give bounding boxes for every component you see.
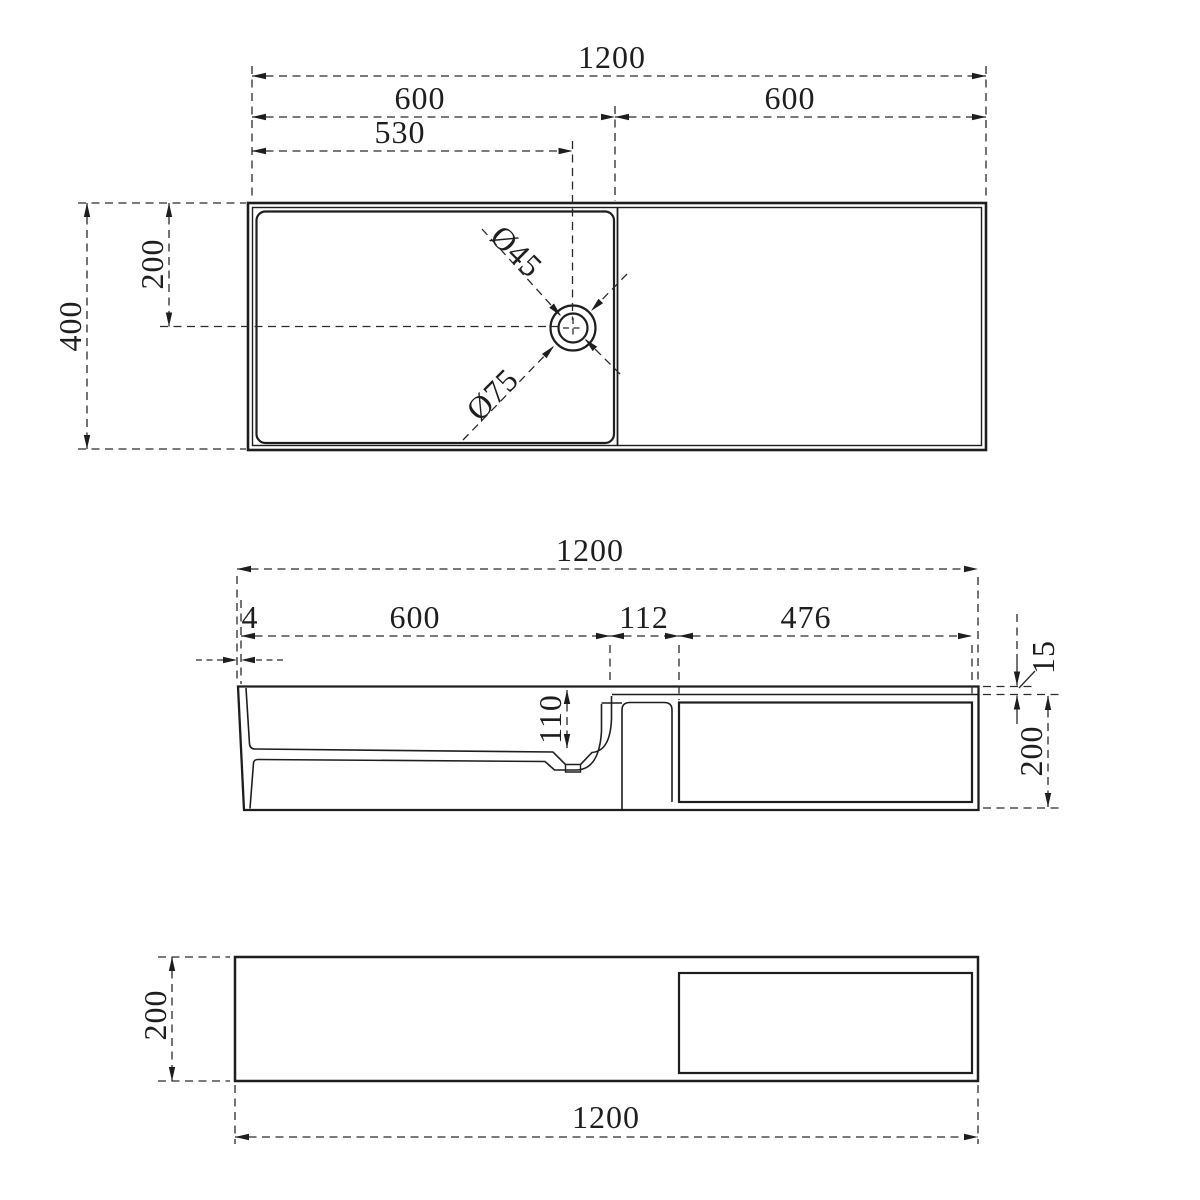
basin-front-edge bbox=[250, 760, 258, 809]
basin-left-inner-wall bbox=[246, 688, 255, 749]
bottom-view bbox=[235, 957, 978, 1081]
leader-drain-flange-opposite bbox=[591, 274, 627, 311]
recess-opening bbox=[679, 703, 972, 803]
dim-label-edge-thickness: 15 bbox=[1025, 640, 1061, 674]
dim-label-drain-offset: 200 bbox=[134, 239, 170, 290]
top-view bbox=[248, 203, 986, 450]
dim-label-right-section: 600 bbox=[765, 80, 816, 116]
front-view bbox=[238, 687, 979, 811]
front-outline bbox=[238, 687, 979, 811]
dim-label-overall-height: 200 bbox=[137, 990, 173, 1041]
dim-label-recess-width: 476 bbox=[781, 599, 832, 635]
dim-label-drain-flange-diameter: Ø75 bbox=[459, 361, 526, 428]
basin-opening bbox=[257, 212, 615, 444]
drain-outlet-stub bbox=[566, 765, 581, 773]
drain-center-mark bbox=[563, 318, 583, 338]
dim-label-overall-height: 200 bbox=[1013, 726, 1049, 777]
technical-drawing-basin: 1200 600 600 530 400 200 Ø45 Ø75 bbox=[0, 0, 1200, 1200]
dim-label-overall-depth: 400 bbox=[52, 301, 88, 352]
dim-label-left-rim: 4 bbox=[242, 599, 259, 635]
top-view-dimensions: 1200 600 600 530 400 200 Ø45 Ø75 bbox=[52, 39, 986, 449]
bottom-outline bbox=[235, 957, 978, 1081]
dim-label-overall-width: 1200 bbox=[556, 532, 624, 568]
dim-label-basin-depth: 110 bbox=[532, 694, 568, 744]
dim-label-overall-width: 1200 bbox=[572, 1099, 640, 1135]
bottom-view-dimensions: 200 1200 bbox=[137, 957, 978, 1144]
divider-wall-face bbox=[622, 703, 672, 811]
dim-label-drain-hole-diameter: Ø45 bbox=[484, 218, 551, 285]
dim-label-deck-width: 112 bbox=[619, 599, 669, 635]
bottom-recess-opening bbox=[679, 973, 972, 1073]
dim-label-overall-width: 1200 bbox=[578, 39, 646, 75]
dim-label-basin-width: 600 bbox=[390, 599, 441, 635]
dim-label-left-section: 600 bbox=[395, 80, 446, 116]
front-view-dimensions: 1200 4 600 112 476 110 15 200 bbox=[196, 532, 1064, 808]
drawing-sheet: 1200 600 600 530 400 200 Ø45 Ø75 bbox=[0, 0, 1200, 1200]
dim-label-drain-from-left: 530 bbox=[375, 114, 426, 150]
